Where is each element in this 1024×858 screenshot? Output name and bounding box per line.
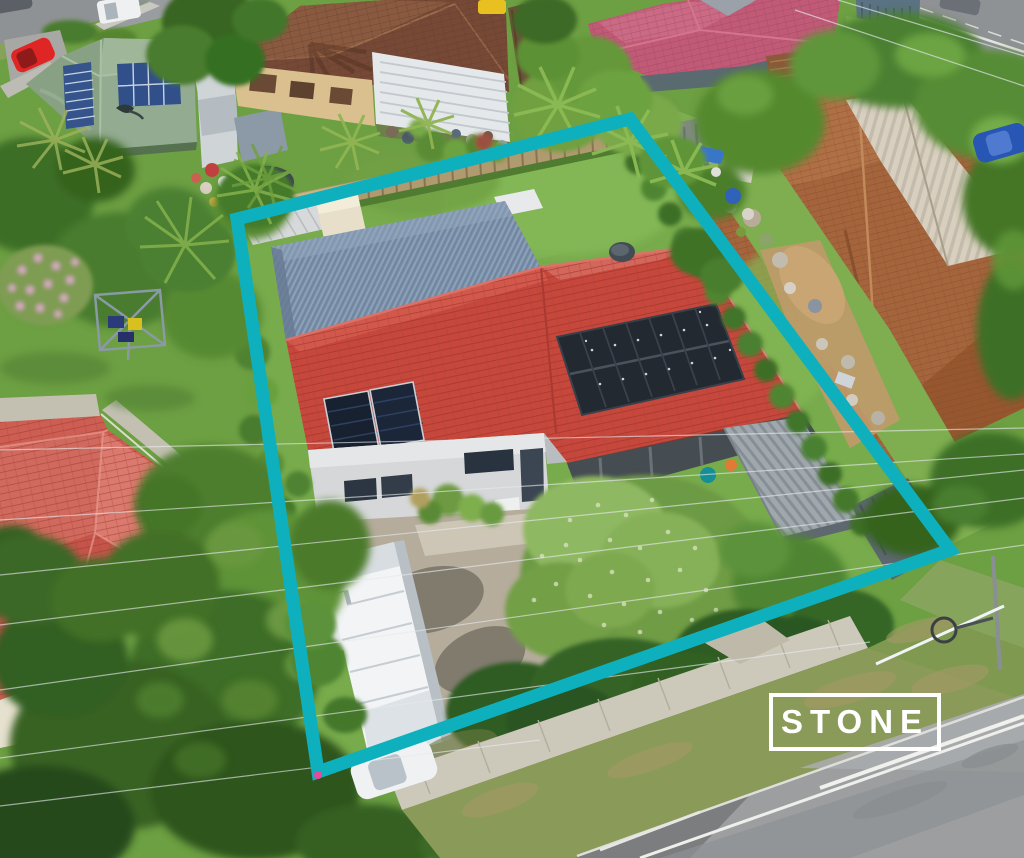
svg-text:STONE: STONE [781, 703, 929, 740]
